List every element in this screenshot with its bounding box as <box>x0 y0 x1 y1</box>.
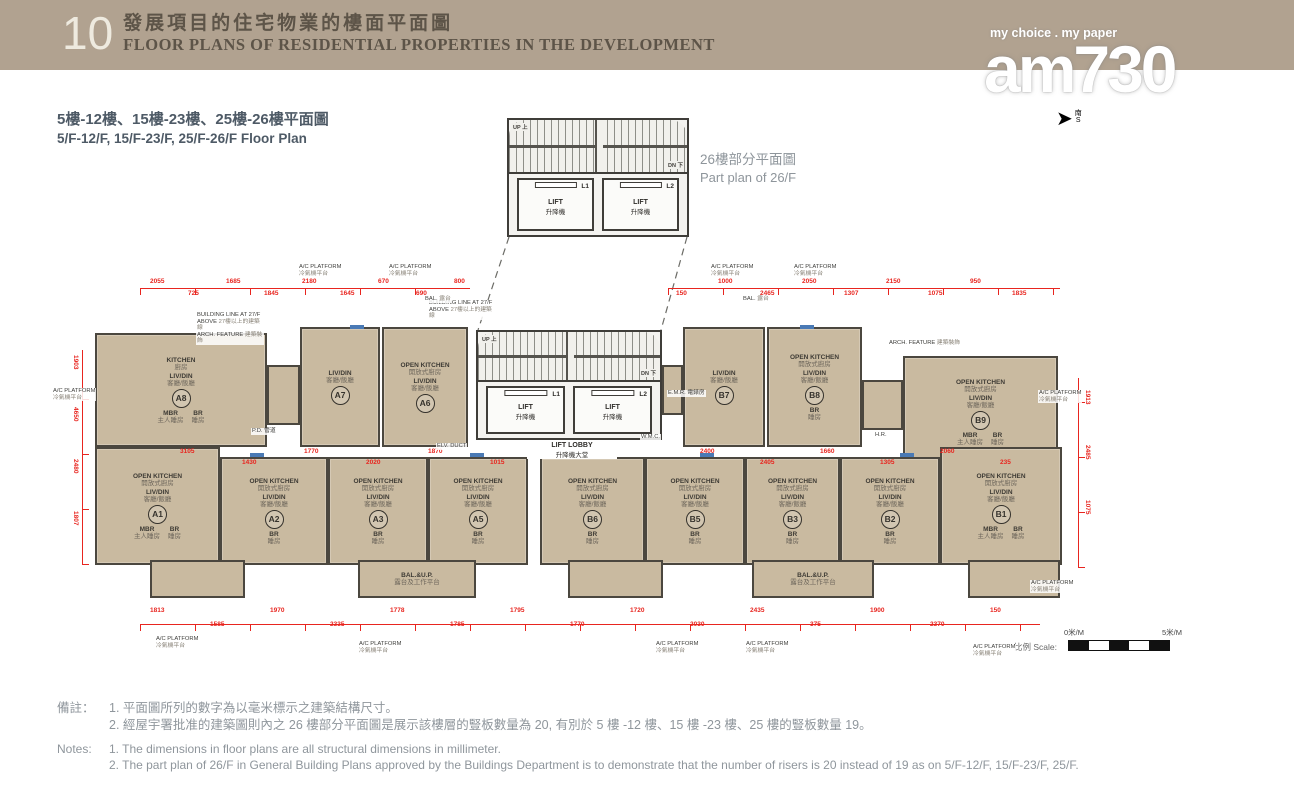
acplat-zh: 冷氣機平台 <box>1039 397 1068 403</box>
dimension-label: 235 <box>1000 460 1011 466</box>
acplat-en: A/C PLATFORM <box>53 388 95 394</box>
dimension-label: 2405 <box>760 460 774 466</box>
dimension-label: 1903 <box>72 355 78 369</box>
lift-number: L1 <box>552 391 560 398</box>
lift-l2: L2 LIFT 升降機 <box>573 386 652 434</box>
dimension-label: 1720 <box>630 608 644 614</box>
dimension-label: 1430 <box>242 460 256 466</box>
stair-up-label: UP 上 <box>481 335 498 343</box>
dimension-label: 1813 <box>150 608 164 614</box>
bal-label: BAL. 露台 <box>742 296 770 303</box>
dimension-label: 2150 <box>886 279 900 285</box>
lift-number: L2 <box>639 391 647 398</box>
lift-label-zh: 升降機 <box>603 411 623 421</box>
dimension-chain <box>82 350 89 565</box>
acplat-zh: 冷氣機平台 <box>973 651 1002 657</box>
dimension-label: 1913 <box>1084 390 1090 404</box>
acplat-en: A/C PLATFORM <box>746 641 788 647</box>
dimension-label: 1075 <box>928 291 942 297</box>
dimension-label: 150 <box>676 291 687 297</box>
stair-dn-label: DN 下 <box>667 161 684 169</box>
acplat-en: A/C PLATFORM <box>1039 390 1081 396</box>
dimension-label: 800 <box>454 279 465 285</box>
window-accent <box>900 453 914 457</box>
dimension-label: 1585 <box>210 622 224 628</box>
dimension-label: 1307 <box>844 291 858 297</box>
hr-label: H.R. <box>874 432 888 439</box>
acplat-zh: 冷氣機平台 <box>389 271 418 277</box>
dimension-chain <box>1078 378 1085 568</box>
emr-label: E.M.R. 電錶房 <box>667 390 706 397</box>
acplat-zh: 冷氣機平台 <box>746 648 775 654</box>
dimension-label: 2030 <box>690 622 704 628</box>
dimension-label: 1645 <box>340 291 354 297</box>
acplat-en: A/C PLATFORM <box>973 644 1015 650</box>
acplat-en: A/C PLATFORM <box>1031 580 1073 586</box>
dimension-chain <box>140 624 1040 631</box>
dimension-label: 2370 <box>930 622 944 628</box>
acplat-en: A/C PLATFORM <box>359 641 401 647</box>
ac-platform-label: A/C PLATFORM冷氣機平台 <box>298 264 342 277</box>
ac-platform-label: A/C PLATFORM冷氣機平台 <box>710 264 754 277</box>
dimension-label: 150 <box>990 608 1001 614</box>
dimension-label: 1970 <box>270 608 284 614</box>
acplat-zh: 冷氣機平台 <box>53 395 82 401</box>
main-core: UP 上 DN 下 L1 LIFT 升降機 L2 LIFT 升降機 <box>476 330 662 440</box>
dimension-label: 1015 <box>490 460 504 466</box>
ac-platform-label: A/C PLATFORM冷氣機平台 <box>793 264 837 277</box>
bal-en: BAL. <box>425 296 438 302</box>
dimension-label: 1685 <box>226 279 240 285</box>
acplat-zh: 冷氣機平台 <box>156 643 185 649</box>
dimension-label: 1000 <box>718 279 732 285</box>
elv-duct-label: ELV. DUCT <box>436 443 467 450</box>
ac-platform-label: A/C PLATFORM冷氣機平台 <box>358 641 402 654</box>
acplat-en: A/C PLATFORM <box>156 636 198 642</box>
dimension-label: 725 <box>188 291 199 297</box>
dimension-label: 2480 <box>72 459 78 473</box>
dimension-label: 950 <box>970 279 981 285</box>
arch-feature-zh: 建築裝飾 <box>937 340 960 346</box>
lobby-zh: 升降機大堂 <box>529 449 615 459</box>
stair-up-label: UP 上 <box>512 123 529 131</box>
acplat-zh: 冷氣機平台 <box>794 271 823 277</box>
bal-label: BAL. 露台 <box>424 296 452 303</box>
ac-platform-label: A/C PLATFORM冷氣機平台 <box>388 264 432 277</box>
lift-door <box>591 390 634 396</box>
ac-platform-label: A/C PLATFORM冷氣機平台 <box>745 641 789 654</box>
ac-platform-label: A/C PLATFORM冷氣機平台 <box>1030 580 1074 593</box>
dimension-label: 2485 <box>1084 445 1090 459</box>
pd-label: P.D. 管道 <box>251 428 277 435</box>
wmc-label: W.M.C. <box>640 434 661 441</box>
ac-platform-label: A/C PLATFORM冷氣機平台 <box>155 636 199 649</box>
building-line-annotation: BUILDING LINE AT 27/F ABOVE 27樓以上的建築線 AR… <box>196 312 264 345</box>
dimension-label: 1845 <box>264 291 278 297</box>
dimension-label: 2180 <box>302 279 316 285</box>
window-accent <box>350 325 364 329</box>
lift-label-en: LIFT <box>605 404 620 411</box>
window-accent <box>800 325 814 329</box>
acplat-zh: 冷氣機平台 <box>359 648 388 654</box>
dimension-label: 2400 <box>700 449 714 455</box>
building-line-annotation: BUILDING LINE AT 27/F ABOVE 27樓以上的建築線 <box>428 300 496 320</box>
lift-l1: L1 LIFT 升降機 <box>486 386 565 434</box>
ac-platform-label: A/C PLATFORM冷氣機平台 <box>1038 390 1082 403</box>
dimension-label: 1900 <box>870 608 884 614</box>
page: { "header": { "page_no": "10", "title_zh… <box>0 0 1294 802</box>
acplat-en: A/C PLATFORM <box>389 264 431 270</box>
ac-platform-label: A/C PLATFORM冷氣機平台 <box>52 388 96 401</box>
dimension-label: 1870 <box>428 449 442 455</box>
dimension-label: 1305 <box>880 460 894 466</box>
stair-dn-label: DN 下 <box>640 369 657 377</box>
lift-label-zh: 升降機 <box>516 411 536 421</box>
acplat-en: A/C PLATFORM <box>794 264 836 270</box>
lift-label-en: LIFT <box>518 404 533 411</box>
arch-feature-annotation: ARCH. FEATURE 建築裝飾 <box>888 340 961 347</box>
lift-lobby-label: LIFT LOBBY 升降機大堂 <box>527 442 617 459</box>
dimension-label: 1770 <box>304 449 318 455</box>
dimension-label: 670 <box>378 279 389 285</box>
dimension-label: 2020 <box>366 460 380 466</box>
window-accent <box>250 453 264 457</box>
dimension-label: 1770 <box>570 622 584 628</box>
lift-door <box>504 390 547 396</box>
bal-en: BAL. <box>743 296 756 302</box>
dimension-label: 2055 <box>150 279 164 285</box>
dimension-label: 1807 <box>72 511 78 525</box>
dimension-label: 1660 <box>820 449 834 455</box>
dimension-label: 3105 <box>180 449 194 455</box>
dimension-label: 4650 <box>72 407 78 421</box>
acplat-zh: 冷氣機平台 <box>656 648 685 654</box>
acplat-en: A/C PLATFORM <box>711 264 753 270</box>
dimension-label: 2435 <box>750 608 764 614</box>
dimension-label: 1778 <box>390 608 404 614</box>
dimension-label: 2060 <box>940 449 954 455</box>
staircase: UP 上 DN 下 <box>478 332 660 382</box>
bal-zh: 露台 <box>757 296 769 302</box>
acplat-en: A/C PLATFORM <box>299 264 341 270</box>
acplat-en: A/C PLATFORM <box>656 641 698 647</box>
arch-feature-en: ARCH. FEATURE <box>889 340 935 346</box>
dimension-label: 1835 <box>1012 291 1026 297</box>
acplat-zh: 冷氣機平台 <box>299 271 328 277</box>
dimension-label: 2050 <box>802 279 816 285</box>
arch-feature-en: ARCH. FEATURE <box>197 332 243 338</box>
dimension-label: 2335 <box>330 622 344 628</box>
window-accent <box>470 453 484 457</box>
acplat-zh: 冷氣機平台 <box>1031 587 1060 593</box>
lift-row: L1 LIFT 升降機 L2 LIFT 升降機 <box>478 382 660 438</box>
ac-platform-label: A/C PLATFORM冷氣機平台 <box>655 641 699 654</box>
bal-zh: 露台 <box>439 296 451 302</box>
dimension-label: 1795 <box>510 608 524 614</box>
dimension-label: 1075 <box>1084 500 1090 514</box>
lobby-en: LIFT LOBBY <box>551 442 592 449</box>
acplat-zh: 冷氣機平台 <box>711 271 740 277</box>
ac-platform-label: A/C PLATFORM冷氣機平台 <box>972 644 1016 657</box>
dimension-label: 1785 <box>450 622 464 628</box>
dimension-chain <box>668 288 1060 295</box>
dimension-label: 375 <box>810 622 821 628</box>
